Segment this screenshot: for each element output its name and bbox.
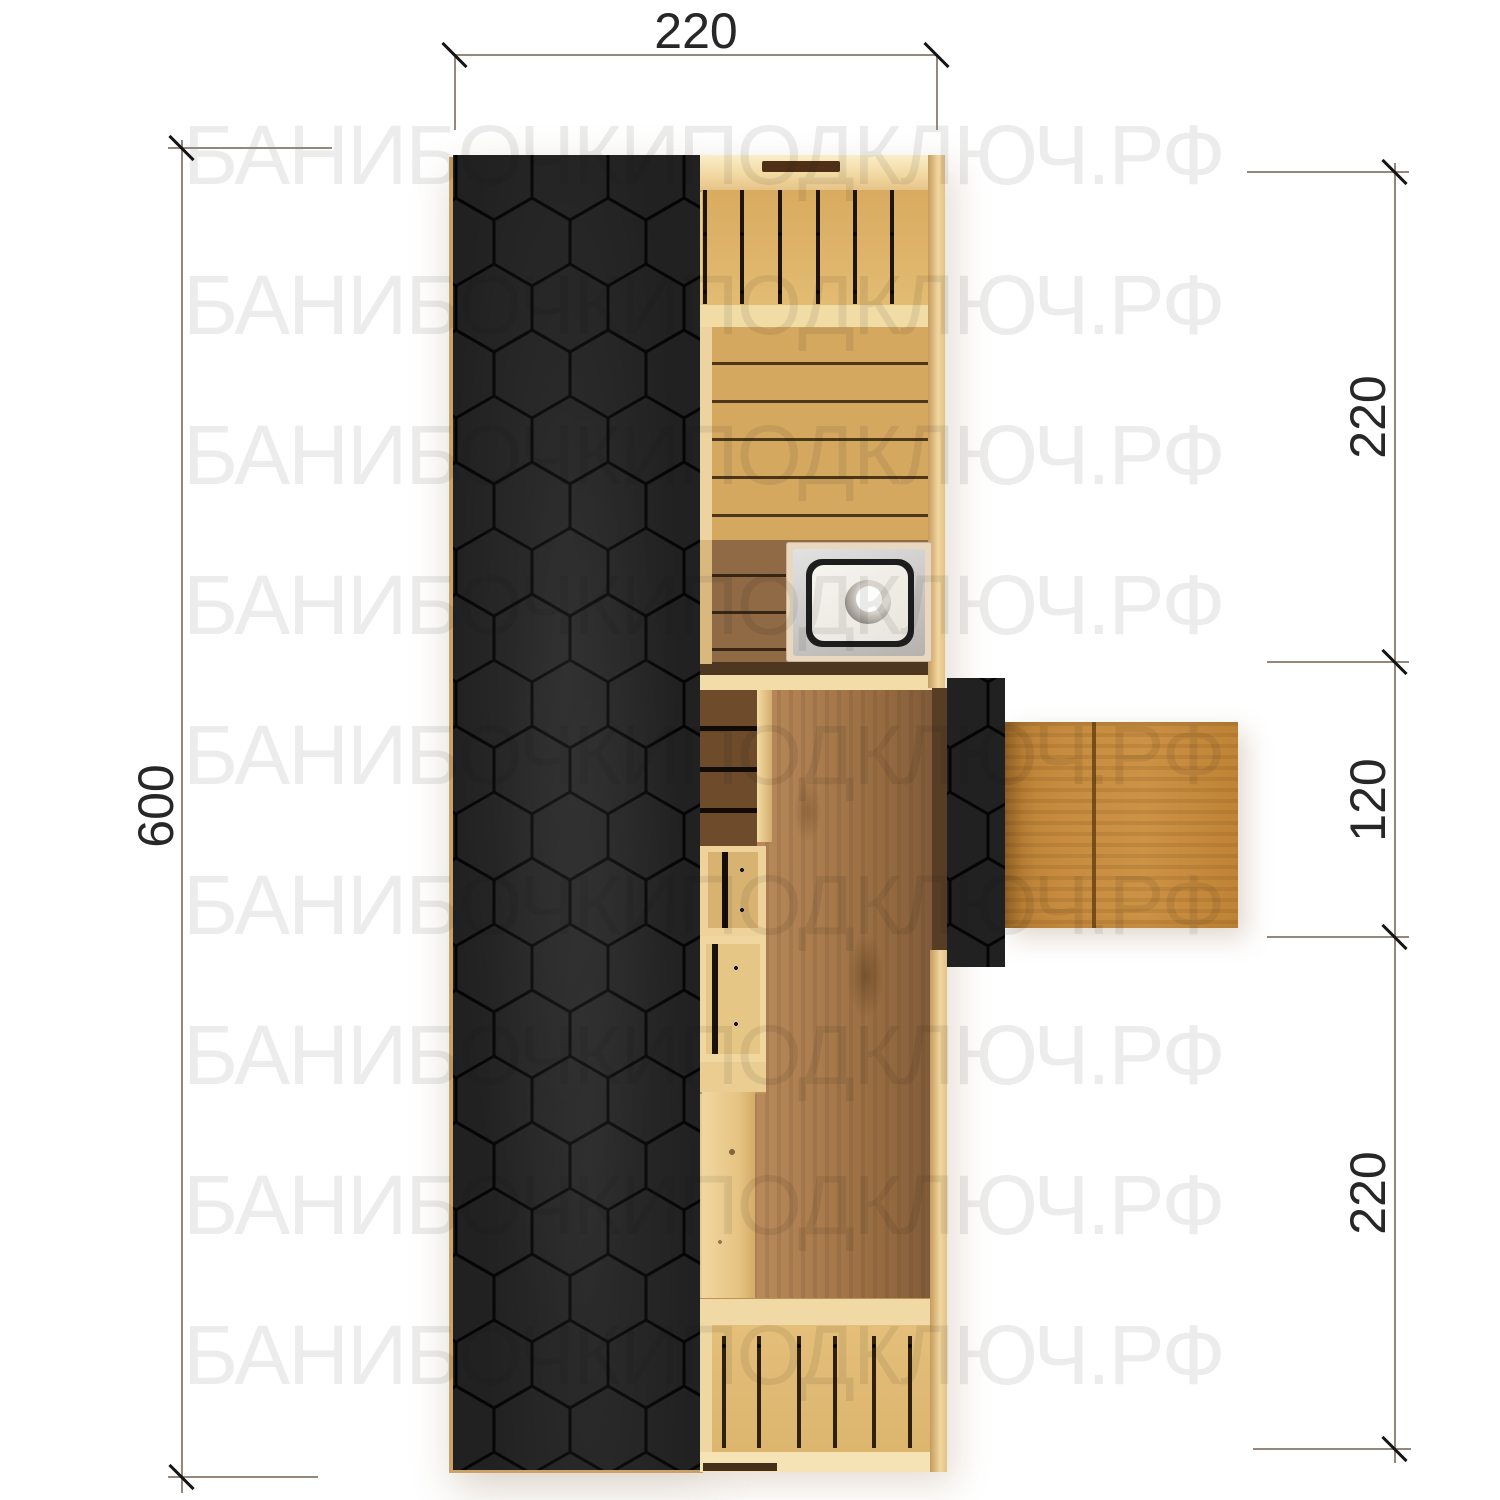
bottom-slat-seam (797, 1336, 801, 1448)
dim-left-ext-bottom (168, 1476, 318, 1478)
dim-top-ext-left (454, 56, 456, 130)
sink-drain-cap (856, 586, 882, 612)
left-frame-strip (700, 1325, 712, 1452)
washroom-floor-planks (700, 327, 928, 540)
bench-slat-seam (816, 190, 820, 304)
sauna-bench-slats (702, 190, 928, 305)
door-jamb (932, 688, 947, 950)
dim-top-label: 220 (636, 2, 756, 60)
dim-right-label-3: 220 (1342, 1118, 1394, 1268)
bench-slat-seam (740, 190, 744, 304)
bench-slat-seam (890, 190, 894, 304)
dim-top-ext-right (936, 56, 938, 130)
bench-slat-seam (778, 190, 782, 304)
shelf-slot (722, 852, 728, 928)
bench-slat-seam (703, 190, 707, 304)
bottom-slat-seam (872, 1336, 876, 1448)
dim-right-ext-1 (1247, 171, 1409, 173)
bottom-slat-seam (757, 1336, 761, 1448)
dim-right-label-2: 120 (1342, 725, 1394, 875)
shelf-slot (712, 944, 718, 1054)
right-wall-lower (930, 950, 947, 1472)
bench-step-band (700, 1062, 766, 1094)
threshold-strip (703, 1463, 777, 1471)
entrance-canopy (947, 678, 1005, 967)
bench-front-band (700, 305, 928, 329)
left-frame-strip (700, 540, 712, 664)
partition-shadow-strip (700, 662, 945, 675)
restroom-floor (753, 690, 935, 1298)
lower-wall-band (700, 1298, 932, 1327)
bench-post (757, 690, 772, 842)
dim-left-ext-top (168, 147, 332, 149)
floor-plan-canvas: БАНИБОЧКИПОДКЛЮЧ.РФ БАНИБОЧКИПОДКЛЮЧ.РФ … (0, 0, 1500, 1500)
dim-right-ext-2 (1267, 661, 1409, 663)
dim-right-ext-4 (1253, 1448, 1411, 1450)
side-bench (702, 1092, 755, 1298)
left-frame-strip (700, 327, 712, 540)
dim-left-label: 600 (130, 731, 182, 881)
dim-right-ext-3 (1267, 936, 1409, 938)
deck-board-seam (1092, 722, 1096, 928)
bottom-bench-slats (700, 1325, 932, 1452)
dim-right-label-1: 220 (1342, 342, 1394, 492)
bottom-slat-seam (722, 1336, 726, 1448)
dark-slat-bench (700, 690, 757, 846)
bottom-slat-seam (833, 1336, 837, 1448)
shelf-box-upper-inner (708, 852, 758, 928)
roof-vent-bar (762, 161, 840, 172)
entrance-deck (1005, 722, 1238, 928)
bottom-slat-seam (908, 1336, 912, 1448)
partition-wall-band (700, 675, 945, 691)
roof-sheen (453, 155, 700, 1470)
bench-slat-seam (853, 190, 857, 304)
